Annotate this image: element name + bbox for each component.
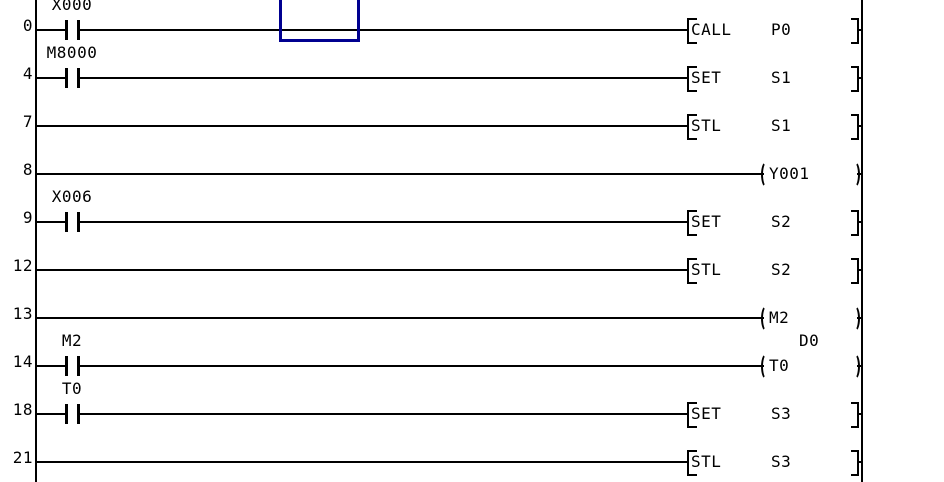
rung-wire bbox=[37, 461, 688, 463]
coil-device-label: M2 bbox=[769, 310, 789, 326]
step-number: 14 bbox=[0, 354, 33, 370]
step-number: 7 bbox=[0, 114, 33, 130]
step-number: 9 bbox=[0, 210, 33, 226]
contact-bar-right-icon bbox=[77, 212, 80, 232]
step-number: 21 bbox=[0, 450, 33, 466]
step-number: 12 bbox=[0, 258, 33, 274]
instruction-operand: S3 bbox=[771, 406, 791, 422]
rung-wire bbox=[37, 125, 688, 127]
output-connector-wire bbox=[857, 413, 862, 415]
instruction-mnemonic: SET bbox=[691, 214, 721, 230]
step-number: 13 bbox=[0, 306, 33, 322]
output-connector-wire bbox=[857, 365, 862, 367]
instruction-mnemonic: SET bbox=[691, 70, 721, 86]
output-connector-wire bbox=[857, 173, 862, 175]
instruction-mnemonic: STL bbox=[691, 262, 721, 278]
right-bracket-icon bbox=[851, 258, 859, 284]
rung-wire bbox=[37, 317, 764, 319]
contact-device-label: T0 bbox=[62, 381, 82, 396]
output-connector-wire bbox=[857, 221, 862, 223]
contact-device-label: X000 bbox=[52, 0, 93, 12]
rung-wire bbox=[37, 413, 65, 415]
step-number: 0 bbox=[0, 18, 33, 34]
contact-bar-left-icon bbox=[65, 404, 68, 424]
step-number: 8 bbox=[0, 162, 33, 178]
rung-wire bbox=[37, 365, 65, 367]
rung-wire bbox=[37, 77, 65, 79]
coil-value-label: D0 bbox=[799, 333, 819, 348]
contact-device-label: X006 bbox=[52, 189, 93, 204]
contact-device-label: M2 bbox=[62, 333, 82, 348]
instruction-operand: S2 bbox=[771, 262, 791, 278]
rung-wire bbox=[80, 29, 688, 31]
ladder-diagram: 0X000CALLP04M8000SETS17STLS18Y0019X006SE… bbox=[0, 0, 944, 482]
output-connector-wire bbox=[857, 317, 862, 319]
edit-cursor[interactable] bbox=[279, 0, 360, 42]
instruction-operand: S1 bbox=[771, 118, 791, 134]
instruction-mnemonic: CALL bbox=[691, 22, 732, 38]
contact-device-label: M8000 bbox=[47, 45, 98, 60]
step-number: 4 bbox=[0, 66, 33, 82]
output-connector-wire bbox=[857, 125, 862, 127]
coil-device-label: T0 bbox=[769, 358, 789, 374]
contact-bar-left-icon bbox=[65, 20, 68, 40]
contact-bar-right-icon bbox=[77, 20, 80, 40]
contact-bar-right-icon bbox=[77, 404, 80, 424]
instruction-mnemonic: STL bbox=[691, 118, 721, 134]
instruction-operand: S3 bbox=[771, 454, 791, 470]
right-bracket-icon bbox=[851, 450, 859, 476]
rung-wire bbox=[37, 29, 65, 31]
rung-wire bbox=[37, 173, 764, 175]
instruction-mnemonic: STL bbox=[691, 454, 721, 470]
contact-bar-left-icon bbox=[65, 212, 68, 232]
instruction-mnemonic: SET bbox=[691, 406, 721, 422]
output-connector-wire bbox=[857, 461, 862, 463]
right-bracket-icon bbox=[851, 114, 859, 140]
rung-wire bbox=[37, 269, 688, 271]
coil-device-label: Y001 bbox=[769, 166, 810, 182]
output-connector-wire bbox=[857, 77, 862, 79]
contact-bar-left-icon bbox=[65, 68, 68, 88]
instruction-operand: S1 bbox=[771, 70, 791, 86]
right-power-rail bbox=[861, 0, 863, 482]
right-bracket-icon bbox=[851, 66, 859, 92]
output-connector-wire bbox=[857, 29, 862, 31]
rung-wire bbox=[80, 365, 764, 367]
contact-bar-right-icon bbox=[77, 356, 80, 376]
instruction-operand: P0 bbox=[771, 22, 791, 38]
right-bracket-icon bbox=[851, 18, 859, 44]
rung-wire bbox=[80, 413, 688, 415]
rung-wire bbox=[80, 221, 688, 223]
step-number: 18 bbox=[0, 402, 33, 418]
contact-bar-left-icon bbox=[65, 356, 68, 376]
rung-wire bbox=[80, 77, 688, 79]
left-power-rail bbox=[35, 0, 37, 482]
instruction-operand: S2 bbox=[771, 214, 791, 230]
right-bracket-icon bbox=[851, 210, 859, 236]
rung-wire bbox=[37, 221, 65, 223]
output-connector-wire bbox=[857, 269, 862, 271]
contact-bar-right-icon bbox=[77, 68, 80, 88]
right-bracket-icon bbox=[851, 402, 859, 428]
